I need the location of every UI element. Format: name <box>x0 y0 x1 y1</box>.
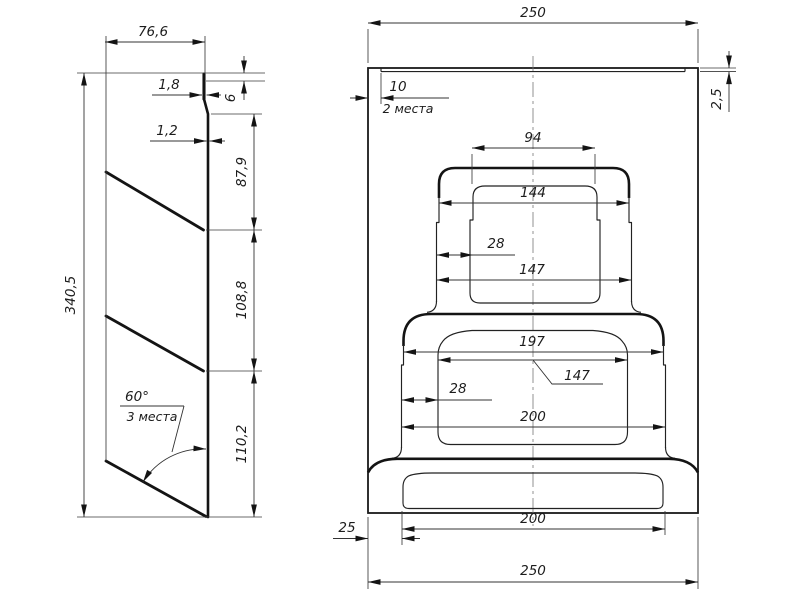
dim-boss2-wall-label: 28 <box>449 381 466 397</box>
dim-segment-3: 110,2 <box>234 371 254 517</box>
dim-boss2-outer-width-label: 197 <box>519 334 545 350</box>
dim-flange-thickness: 1,8 <box>152 77 221 95</box>
dim-width-top: 76,6 <box>105 24 205 42</box>
dim-boss2-lower-width-label: 200 <box>520 409 546 425</box>
dim-boss1-inner-width: 94 <box>472 130 595 148</box>
dim-boss1-inner-width-label: 94 <box>524 130 541 146</box>
dim-boss1-outer-width: 144 <box>439 185 629 203</box>
dim-edge-offset-note: 2 места <box>383 101 434 116</box>
dim-width-top-label: 76,6 <box>138 24 168 40</box>
dim-overall-width-top: 250 <box>368 5 698 23</box>
technical-drawing-sheet: 76,6 340,5 1,8 1,2 6 87,9 <box>0 0 800 600</box>
louver-3 <box>106 461 206 517</box>
dim-louver-angle-note: 3 места <box>127 409 178 424</box>
dim-boss2-lower-width: 200 <box>402 409 666 427</box>
louver-2 <box>106 316 204 371</box>
dim-sheet-thickness-label: 1,2 <box>156 123 177 139</box>
dim-boss1-lower-width-label: 147 <box>519 262 545 278</box>
dim-segment-1-label: 87,9 <box>234 157 250 187</box>
dim-boss1-outer-width-label: 144 <box>520 185 546 201</box>
front-view: 250 10 2 места 2,5 94 144 <box>333 5 736 589</box>
dim-boss1-wall: 28 <box>437 236 516 255</box>
dim-segment-2: 108,8 <box>234 230 254 371</box>
dim-strip-thickness-label: 2,5 <box>709 88 725 109</box>
dim-base-offset-label: 25 <box>338 520 355 536</box>
dim-boss2-inner-width-label: 147 <box>564 368 590 384</box>
dim-sheet-thickness: 1,2 <box>150 123 225 141</box>
dim-louver-angle: 60° 3 места <box>120 389 206 482</box>
dim-total-height: 340,5 <box>63 73 84 517</box>
dim-overall-width-bottom: 250 <box>368 563 698 582</box>
dim-edge-offset-label: 10 <box>389 79 406 95</box>
drawing-canvas: 76,6 340,5 1,8 1,2 6 87,9 <box>0 0 800 600</box>
louver-1 <box>106 172 204 230</box>
dim-boss2-wall: 28 <box>402 381 493 400</box>
dim-segment-3-label: 110,2 <box>234 425 250 464</box>
side-profile-outline <box>106 36 208 517</box>
dim-flange-thickness-label: 1,8 <box>158 77 179 93</box>
dim-overall-width-bottom-label: 250 <box>520 563 546 579</box>
dim-total-height-label: 340,5 <box>63 276 79 315</box>
dim-segment-1: 87,9 <box>234 114 254 230</box>
dim-louver-angle-label: 60° <box>125 389 149 405</box>
dim-base-inner-width-label: 200 <box>520 511 546 527</box>
dim-strip-thickness: 2,5 <box>709 51 729 112</box>
dim-overall-width-top-label: 250 <box>520 5 546 21</box>
dim-segment-2-label: 108,8 <box>234 281 250 320</box>
dim-boss1-lower-width: 147 <box>437 262 632 280</box>
dim-edge-offset: 10 2 места <box>350 79 449 116</box>
side-view: 76,6 340,5 1,8 1,2 6 87,9 <box>63 24 265 517</box>
dim-flange-height: 6 <box>223 56 244 102</box>
dim-boss2-outer-width: 197 <box>404 334 664 352</box>
dim-flange-height-label: 6 <box>223 94 239 103</box>
dim-boss1-wall-label: 28 <box>487 236 504 252</box>
